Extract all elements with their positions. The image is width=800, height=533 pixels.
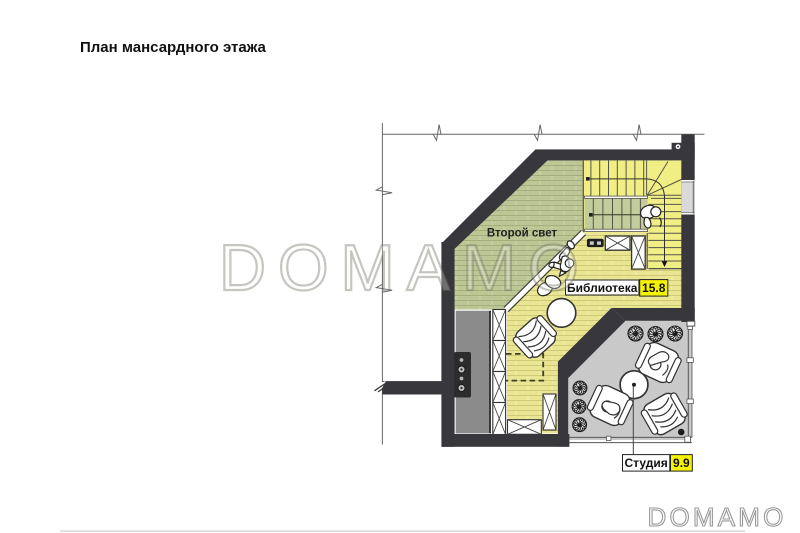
svg-text:Студия: Студия <box>624 456 667 470</box>
svg-text:План мансардного этажа: План мансардного этажа <box>80 39 267 56</box>
svg-text:15.8: 15.8 <box>642 281 666 295</box>
svg-text:9.9: 9.9 <box>673 456 690 470</box>
svg-text:DOMAMO: DOMAMO <box>648 502 787 532</box>
svg-text:DOMAMO: DOMAMO <box>219 231 591 304</box>
